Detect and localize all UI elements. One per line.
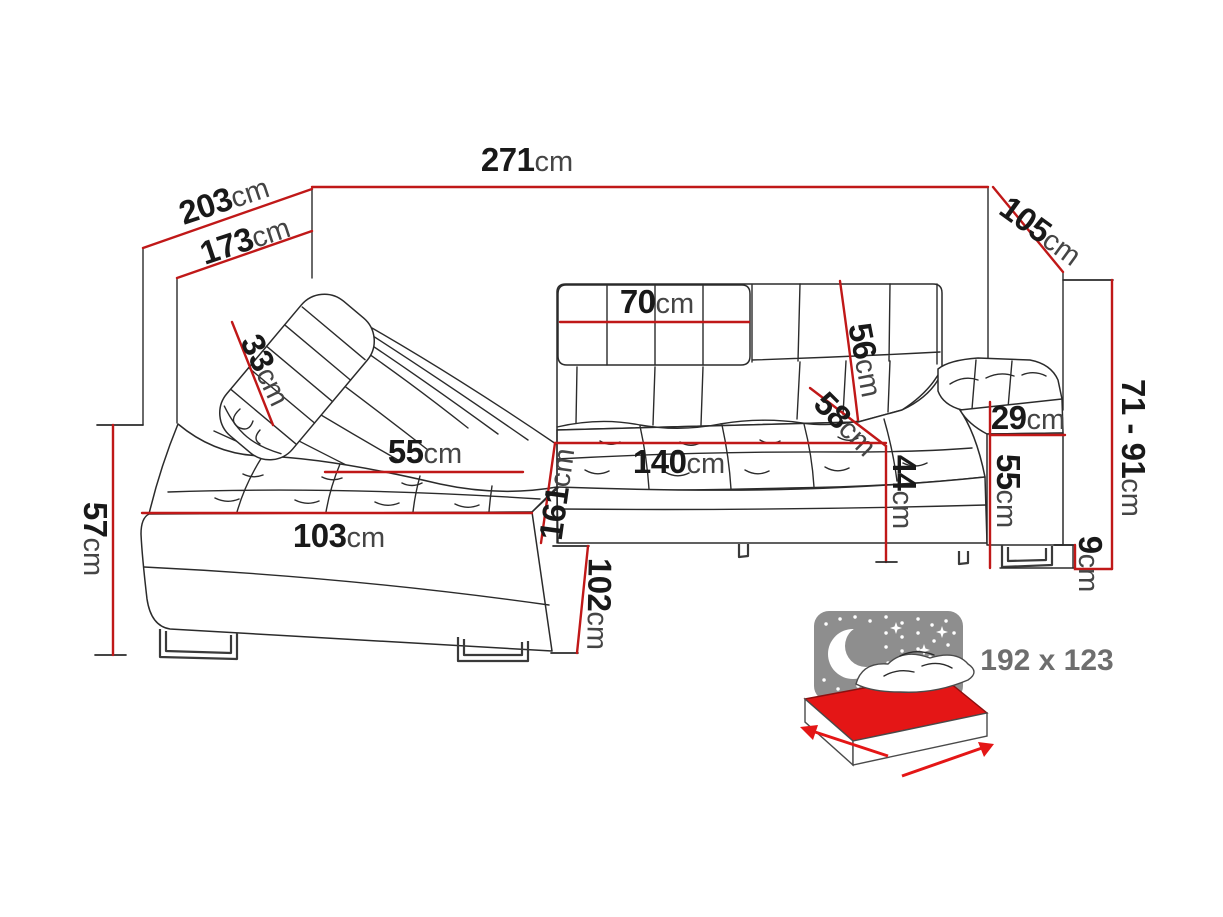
dimension-105: 105cm xyxy=(993,187,1089,273)
dimension-label-102: 102cm xyxy=(580,558,619,651)
dimension-label-57: 57cm xyxy=(77,502,114,576)
dimension-9: 9cm xyxy=(1054,536,1112,593)
right-leg-outer xyxy=(1002,545,1052,567)
pillow-body xyxy=(207,282,386,472)
dimension-value: 57 xyxy=(77,502,114,538)
dimension-unit: cm xyxy=(424,438,463,470)
moon-shadow xyxy=(845,625,887,667)
corner-foot xyxy=(1055,545,1073,568)
dimension-value: 140 xyxy=(633,443,687,480)
dimension-unit: cm xyxy=(656,288,695,320)
dimension-value: 161 xyxy=(532,484,576,542)
dimension-unit: cm xyxy=(1027,404,1066,436)
chaise-leg-left xyxy=(160,629,237,659)
dimension-unit: cm xyxy=(886,491,918,530)
dimension-unit: cm xyxy=(534,146,573,178)
dimension-value: 71 - 91 xyxy=(1115,379,1152,478)
dimension-label-103: 103cm xyxy=(293,517,385,554)
dimension-value: 44 xyxy=(886,455,923,492)
dimension-value: 55 xyxy=(990,454,1027,490)
dimension-value: 271 xyxy=(481,141,535,178)
headrest-pillow xyxy=(207,282,386,472)
dimension-unit: cm xyxy=(346,522,385,554)
sofa-dimension-diagram: 271cm 203cm 173cm 105cm 71 - 91cm 70cm 3… xyxy=(0,0,1223,917)
dimension-label-9: 9cm xyxy=(1072,536,1109,593)
right-leg-small xyxy=(739,544,748,557)
dimension-71-91: 71 - 91cm xyxy=(1063,280,1152,569)
sleeping-function: 192 x 123 xyxy=(800,611,1114,776)
dimension-label-71-91: 71 - 91cm xyxy=(1115,379,1152,517)
dimension-value: 103 xyxy=(293,517,347,554)
dimension-label-29: 29cm xyxy=(991,399,1065,436)
dimension-unit: cm xyxy=(686,448,725,480)
dimension-unit: cm xyxy=(580,611,613,650)
dimension-unit: cm xyxy=(77,538,109,577)
dimension-271: 271cm xyxy=(312,141,988,187)
dimension-29: 29cm xyxy=(990,399,1065,436)
dimension-unit: cm xyxy=(227,172,274,215)
dimension-label-140: 140cm xyxy=(633,443,725,480)
dimension-label-44: 44cm xyxy=(886,455,923,529)
dimension-value: 29 xyxy=(991,399,1027,436)
dimension-unit: cm xyxy=(990,490,1022,529)
dimension-label-70: 70cm xyxy=(620,283,694,320)
sleeping-area-label: 192 x 123 xyxy=(980,644,1113,677)
chaise-seat xyxy=(149,424,557,514)
dimension-unit: cm xyxy=(1072,554,1104,593)
length-arrow-head xyxy=(800,725,818,740)
dimension-label-271: 271cm xyxy=(481,141,573,178)
right-leg-mid xyxy=(959,551,968,564)
dimension-value: 9 xyxy=(1072,536,1109,554)
dimension-label-105: 105cm xyxy=(993,189,1089,273)
dimension-unit: cm xyxy=(248,212,295,255)
dimension-value: 55 xyxy=(388,433,424,470)
dimension-57: 57cm xyxy=(77,425,143,655)
dimension-102: 102cm xyxy=(551,546,619,653)
dimension-label-55-armrest: 55cm xyxy=(990,454,1027,528)
dimension-label-55-seat: 55cm xyxy=(388,433,462,470)
dimension-value: 102 xyxy=(581,558,619,612)
dimension-unit: cm xyxy=(544,446,581,489)
dimension-value: 70 xyxy=(620,283,656,320)
dimension-unit: cm xyxy=(1115,478,1147,517)
